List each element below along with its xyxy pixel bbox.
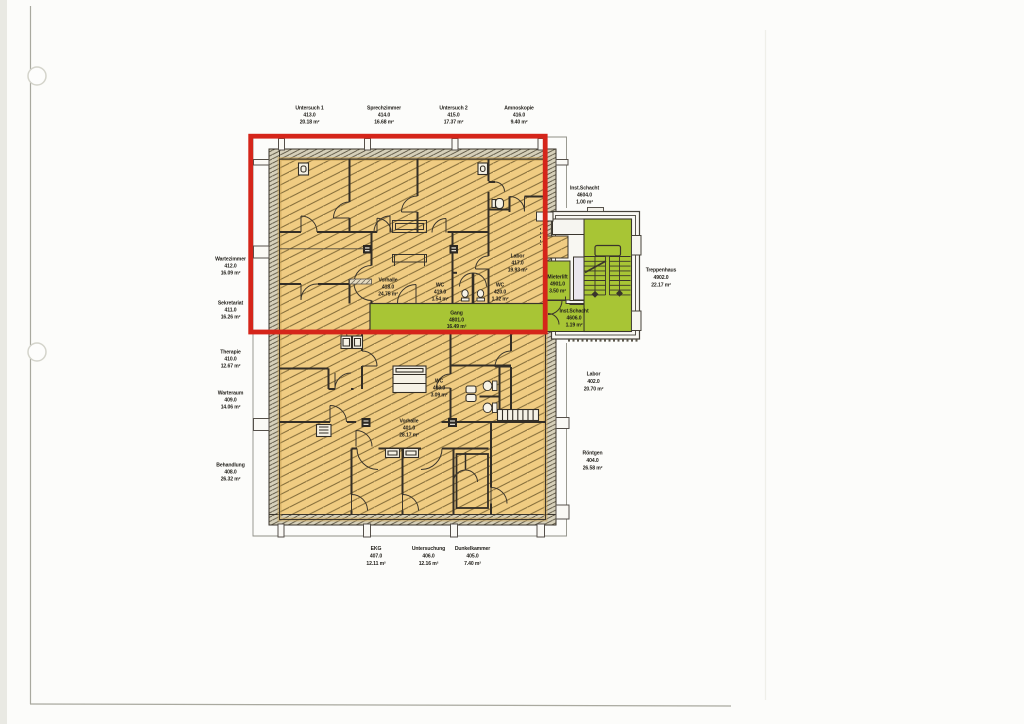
svg-text:Warteraum: Warteraum bbox=[218, 391, 244, 397]
svg-text:406.0: 406.0 bbox=[422, 554, 435, 560]
svg-text:Röntgen: Röntgen bbox=[583, 451, 603, 457]
svg-text:9.40 m²: 9.40 m² bbox=[511, 120, 528, 126]
svg-text:3.09 m²: 3.09 m² bbox=[431, 393, 448, 399]
svg-text:412.0: 412.0 bbox=[224, 264, 237, 270]
svg-text:20.18 m²: 20.18 m² bbox=[300, 120, 320, 126]
svg-text:Inst.Schacht: Inst.Schacht bbox=[559, 309, 588, 315]
svg-text:Untersuchung: Untersuchung bbox=[412, 546, 445, 552]
svg-text:Gang: Gang bbox=[450, 311, 463, 317]
svg-text:401.0: 401.0 bbox=[403, 426, 416, 432]
svg-text:EKG: EKG bbox=[371, 546, 382, 552]
svg-text:16.09 m²: 16.09 m² bbox=[221, 271, 241, 277]
svg-text:Sprechzimmer: Sprechzimmer bbox=[367, 106, 401, 112]
svg-text:4604.0: 4604.0 bbox=[577, 193, 592, 199]
svg-text:26.58 m²: 26.58 m² bbox=[583, 466, 603, 472]
svg-text:WC: WC bbox=[496, 283, 505, 289]
svg-text:413.0: 413.0 bbox=[303, 113, 316, 119]
svg-text:415.0: 415.0 bbox=[447, 113, 460, 119]
svg-text:WC: WC bbox=[436, 283, 445, 289]
svg-text:14.06 m²: 14.06 m² bbox=[221, 405, 241, 411]
svg-text:22.17 m²: 22.17 m² bbox=[651, 283, 671, 289]
svg-text:4801.0: 4801.0 bbox=[449, 318, 464, 324]
svg-text:Untersuch 2: Untersuch 2 bbox=[439, 106, 468, 112]
svg-text:12.16 m²: 12.16 m² bbox=[419, 561, 439, 567]
svg-text:1.19 m²: 1.19 m² bbox=[566, 323, 583, 329]
svg-text:WC: WC bbox=[435, 379, 444, 385]
svg-text:414.0: 414.0 bbox=[378, 113, 391, 119]
svg-text:4902.0: 4902.0 bbox=[654, 275, 669, 281]
svg-text:16.68 m²: 16.68 m² bbox=[374, 120, 394, 126]
svg-text:410.0: 410.0 bbox=[224, 357, 237, 363]
svg-text:418.0: 418.0 bbox=[382, 285, 395, 291]
svg-text:407.0: 407.0 bbox=[370, 554, 383, 560]
svg-text:405.0: 405.0 bbox=[466, 554, 479, 560]
svg-text:16.26 m²: 16.26 m² bbox=[221, 315, 241, 321]
svg-text:417.0: 417.0 bbox=[511, 261, 524, 267]
svg-text:3.50 m²: 3.50 m² bbox=[549, 289, 566, 295]
svg-text:419.0: 419.0 bbox=[434, 290, 447, 296]
svg-text:409.0: 409.0 bbox=[224, 398, 237, 404]
svg-text:7.40 m²: 7.40 m² bbox=[464, 561, 481, 567]
svg-text:Inst.Schacht: Inst.Schacht bbox=[570, 186, 599, 192]
svg-text:16.49 m²: 16.49 m² bbox=[447, 324, 467, 330]
svg-text:416.0: 416.0 bbox=[513, 113, 526, 119]
svg-text:1.00 m²: 1.00 m² bbox=[576, 200, 593, 206]
svg-text:403.0: 403.0 bbox=[433, 386, 446, 392]
svg-text:19.93 m²: 19.93 m² bbox=[508, 268, 528, 274]
svg-text:Therapie: Therapie bbox=[220, 350, 241, 356]
svg-text:Sekretariat: Sekretariat bbox=[218, 301, 244, 307]
svg-text:17.37 m²: 17.37 m² bbox=[444, 120, 464, 126]
svg-text:1.32 m²: 1.32 m² bbox=[492, 297, 509, 303]
svg-text:12.67 m²: 12.67 m² bbox=[221, 364, 241, 370]
svg-text:Labor: Labor bbox=[587, 372, 601, 378]
svg-text:Vorhalle: Vorhalle bbox=[379, 278, 398, 284]
svg-text:404.0: 404.0 bbox=[586, 458, 599, 464]
svg-text:4901.0: 4901.0 bbox=[550, 282, 565, 288]
svg-text:Labor: Labor bbox=[511, 254, 525, 260]
svg-text:Amnoskopie: Amnoskopie bbox=[504, 106, 534, 112]
svg-text:Treppenhaus: Treppenhaus bbox=[646, 268, 677, 274]
svg-text:Wartezimmer: Wartezimmer bbox=[215, 257, 246, 263]
svg-text:Dunkelkammer: Dunkelkammer bbox=[455, 546, 490, 552]
svg-text:28.17 m²: 28.17 m² bbox=[399, 433, 419, 439]
svg-text:402.0: 402.0 bbox=[587, 379, 600, 385]
svg-text:Untersuch 1: Untersuch 1 bbox=[295, 106, 324, 112]
svg-text:24.75 m²: 24.75 m² bbox=[378, 292, 398, 298]
svg-text:Mieterlift: Mieterlift bbox=[547, 275, 568, 281]
svg-text:Vorhalle: Vorhalle bbox=[400, 419, 419, 425]
svg-text:20.70 m²: 20.70 m² bbox=[584, 387, 604, 393]
svg-text:Behandlung: Behandlung bbox=[216, 463, 244, 469]
svg-text:12.11 m²: 12.11 m² bbox=[366, 561, 386, 567]
svg-text:1.54 m²: 1.54 m² bbox=[432, 297, 449, 303]
svg-text:408.0: 408.0 bbox=[224, 470, 237, 476]
svg-text:420.0: 420.0 bbox=[494, 290, 507, 296]
svg-text:4606.0: 4606.0 bbox=[567, 316, 582, 322]
svg-text:26.32 m²: 26.32 m² bbox=[221, 477, 241, 483]
svg-text:411.0: 411.0 bbox=[225, 308, 237, 314]
